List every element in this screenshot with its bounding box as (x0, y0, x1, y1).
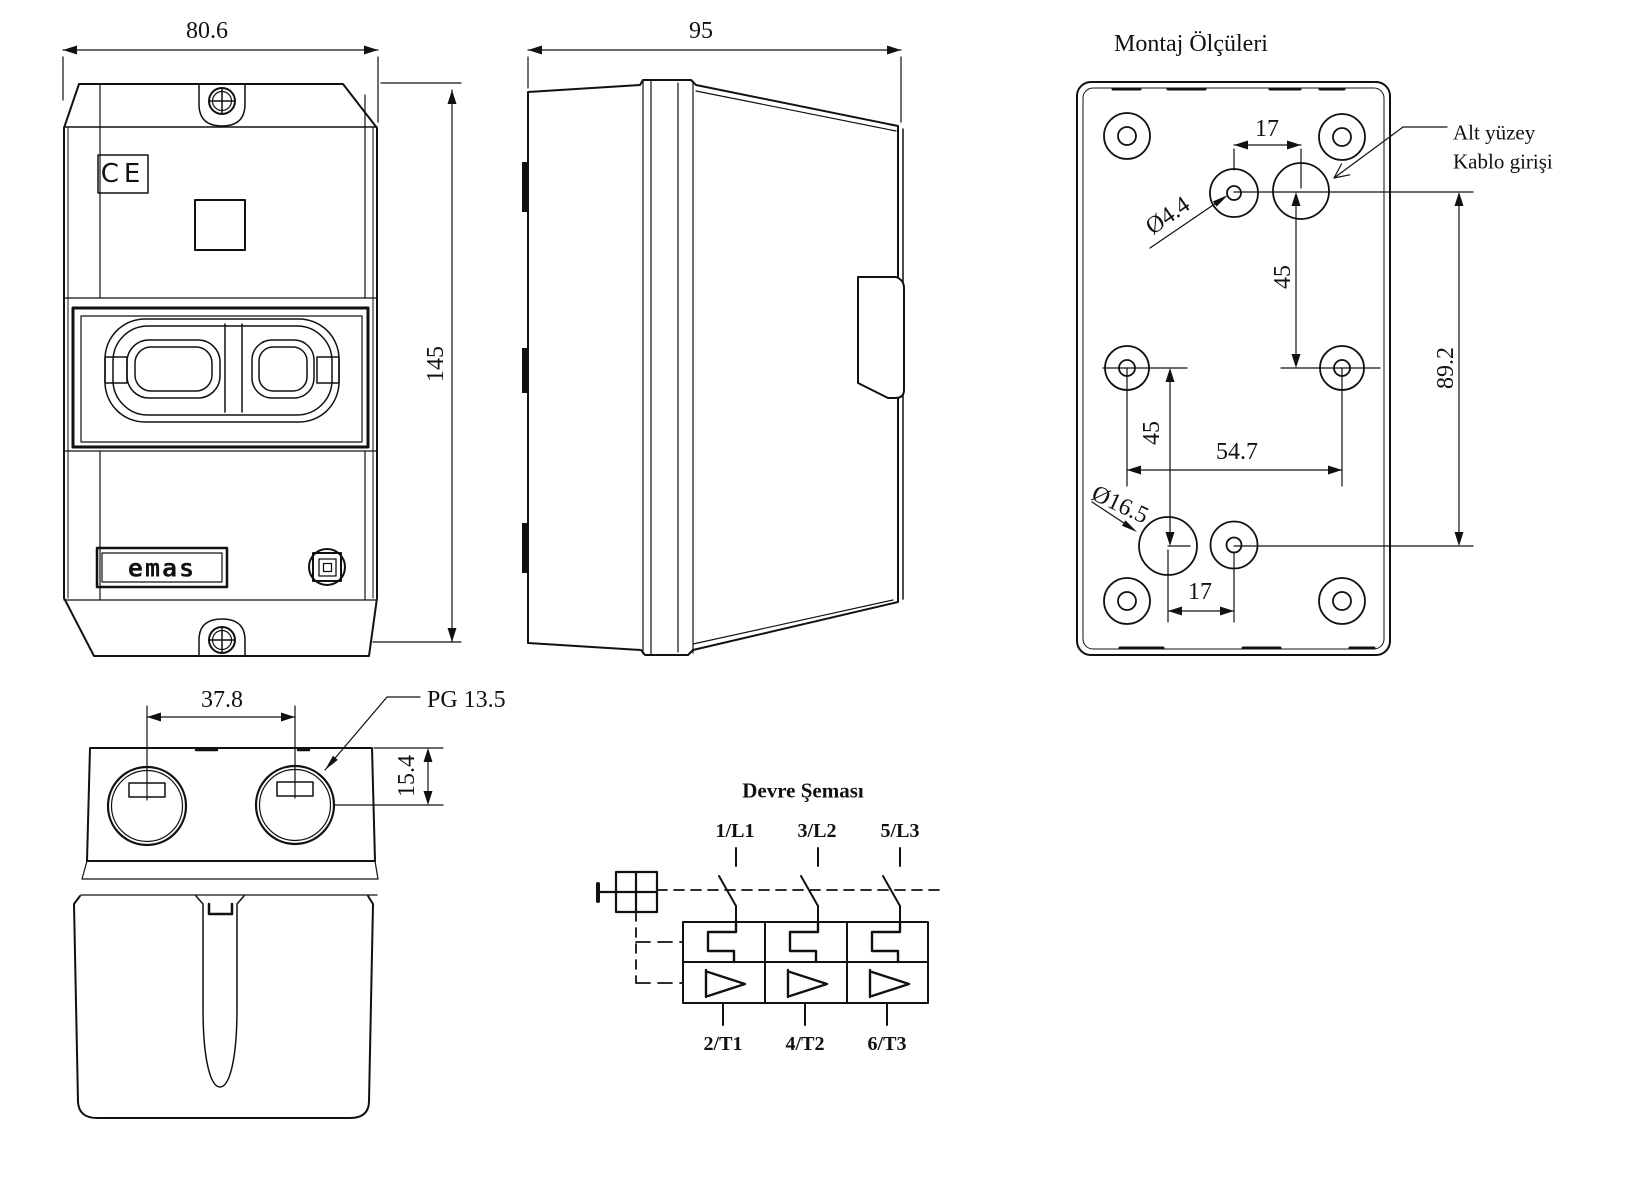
reset-button[interactable] (309, 549, 345, 585)
terminal-label-1L1: 1/L1 (716, 821, 755, 841)
circuit-diagram-drawing (598, 848, 944, 1025)
cable-note-line1: Alt yüzey (1453, 123, 1535, 144)
hinge-tab (522, 523, 527, 573)
terminal-label-3L2: 3/L2 (798, 821, 837, 841)
brand-logo-label: emas (128, 556, 196, 581)
top-screw-icon (199, 84, 245, 126)
lower-vertical-label: 45 (1140, 421, 1164, 445)
terminal-label-2T1: 2/T1 (704, 1034, 743, 1054)
bottom-screw-icon (199, 619, 245, 656)
rocker-button-right[interactable] (252, 340, 314, 398)
front-height-dim-label: 145 (424, 346, 448, 382)
bottom-spacing-label: 17 (1188, 580, 1212, 604)
start-stop-rocker-button[interactable] (73, 308, 368, 447)
front-width-dim-label: 80.6 (186, 19, 228, 43)
terminal-label-6T3: 6/T3 (868, 1034, 907, 1054)
switch-contacts (719, 876, 900, 906)
mounting-latch (858, 277, 904, 398)
gland-spacing-label: 37.8 (201, 688, 243, 712)
hinge-tab (522, 348, 527, 393)
cable-note-line2: Kablo girişi (1453, 152, 1553, 173)
technical-drawing-sheet: 80.6 145 CE emas 95 Montaj Ölçüleri 17 Ø… (0, 0, 1632, 1190)
top-spacing-label: 17 (1255, 117, 1279, 141)
horizontal-spacing-label: 54.7 (1216, 440, 1258, 464)
bottom-view-drawing (74, 697, 443, 1118)
magnetic-trip-symbols (706, 970, 909, 997)
circuit-title: Devre Şeması (742, 781, 864, 802)
side-view-drawing (522, 46, 904, 656)
edge-offset-label: 15.4 (395, 755, 419, 797)
side-depth-dimension (528, 46, 901, 123)
mounting-dimension-lines (1092, 127, 1473, 622)
label-window (195, 200, 245, 250)
thermal-overload-symbols (708, 922, 900, 962)
front-view-drawing (63, 46, 461, 657)
gland-type-label: PG 13.5 (427, 688, 506, 712)
hinge-tab (522, 162, 527, 212)
side-depth-dim-label: 95 (689, 19, 713, 43)
mounting-view-drawing (1077, 82, 1473, 655)
latch-tongue (196, 896, 244, 1087)
terminal-label-4T2: 4/T2 (786, 1034, 825, 1054)
operator-handle-symbol (598, 872, 657, 912)
overall-vertical-label: 89.2 (1434, 347, 1458, 389)
mounting-title: Montaj Ölçüleri (1114, 32, 1268, 56)
upper-vertical-label: 45 (1271, 265, 1295, 289)
ce-mark-label: CE (101, 161, 146, 187)
rocker-button-left[interactable] (127, 340, 220, 398)
terminal-label-5L3: 5/L3 (881, 821, 920, 841)
drawing-canvas (0, 0, 1632, 1190)
